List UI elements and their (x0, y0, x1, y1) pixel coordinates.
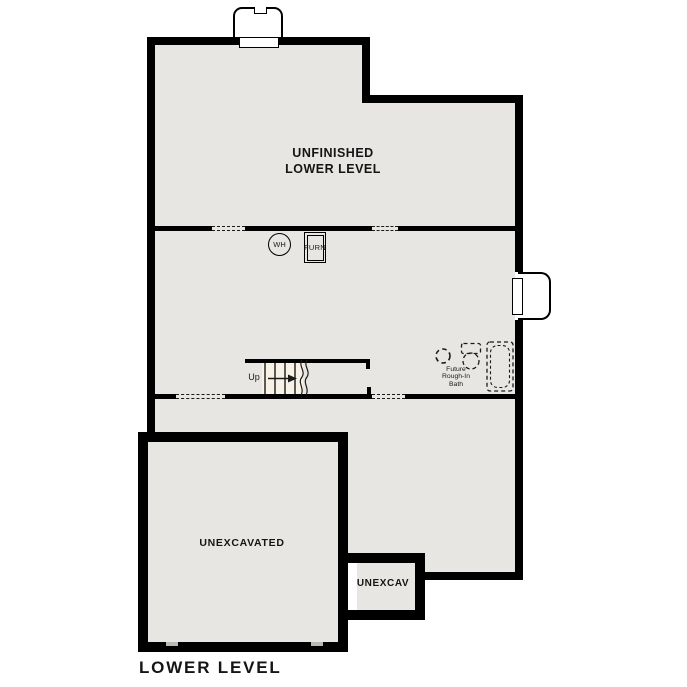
toilet-tank-symbol (462, 344, 481, 354)
stair-break-line (305, 360, 308, 395)
room-label-unexcav: UNEXCAV (352, 578, 414, 589)
future-bath-label-line3: Bath (430, 381, 482, 388)
floor-plan: UNFINISHED LOWER LEVEL WH FURN Up Future… (0, 0, 687, 687)
bathtub-inner-symbol (491, 346, 510, 388)
room-label-unfinished: UNFINISHED LOWER LEVEL (243, 145, 423, 177)
future-bath-label: Future Rough-In Bath (430, 366, 482, 388)
future-bath-label-line1: Future (430, 366, 482, 373)
water-heater-label: WH (273, 240, 286, 249)
room-label-unfinished-line2: LOWER LEVEL (243, 161, 423, 177)
stair-break-line (300, 360, 303, 395)
future-bath-label-line2: Rough-In (430, 373, 482, 380)
room-label-unexcavated: UNEXCAVATED (167, 537, 317, 549)
room-label-unfinished-line1: UNFINISHED (243, 145, 423, 161)
furnace-label: FURN (300, 243, 330, 252)
plan-linework (0, 0, 687, 687)
floor-drain-symbol (436, 349, 450, 363)
plan-title: LOWER LEVEL (139, 658, 439, 678)
water-heater-symbol: WH (268, 233, 291, 256)
stairs-up-label: Up (245, 372, 263, 382)
